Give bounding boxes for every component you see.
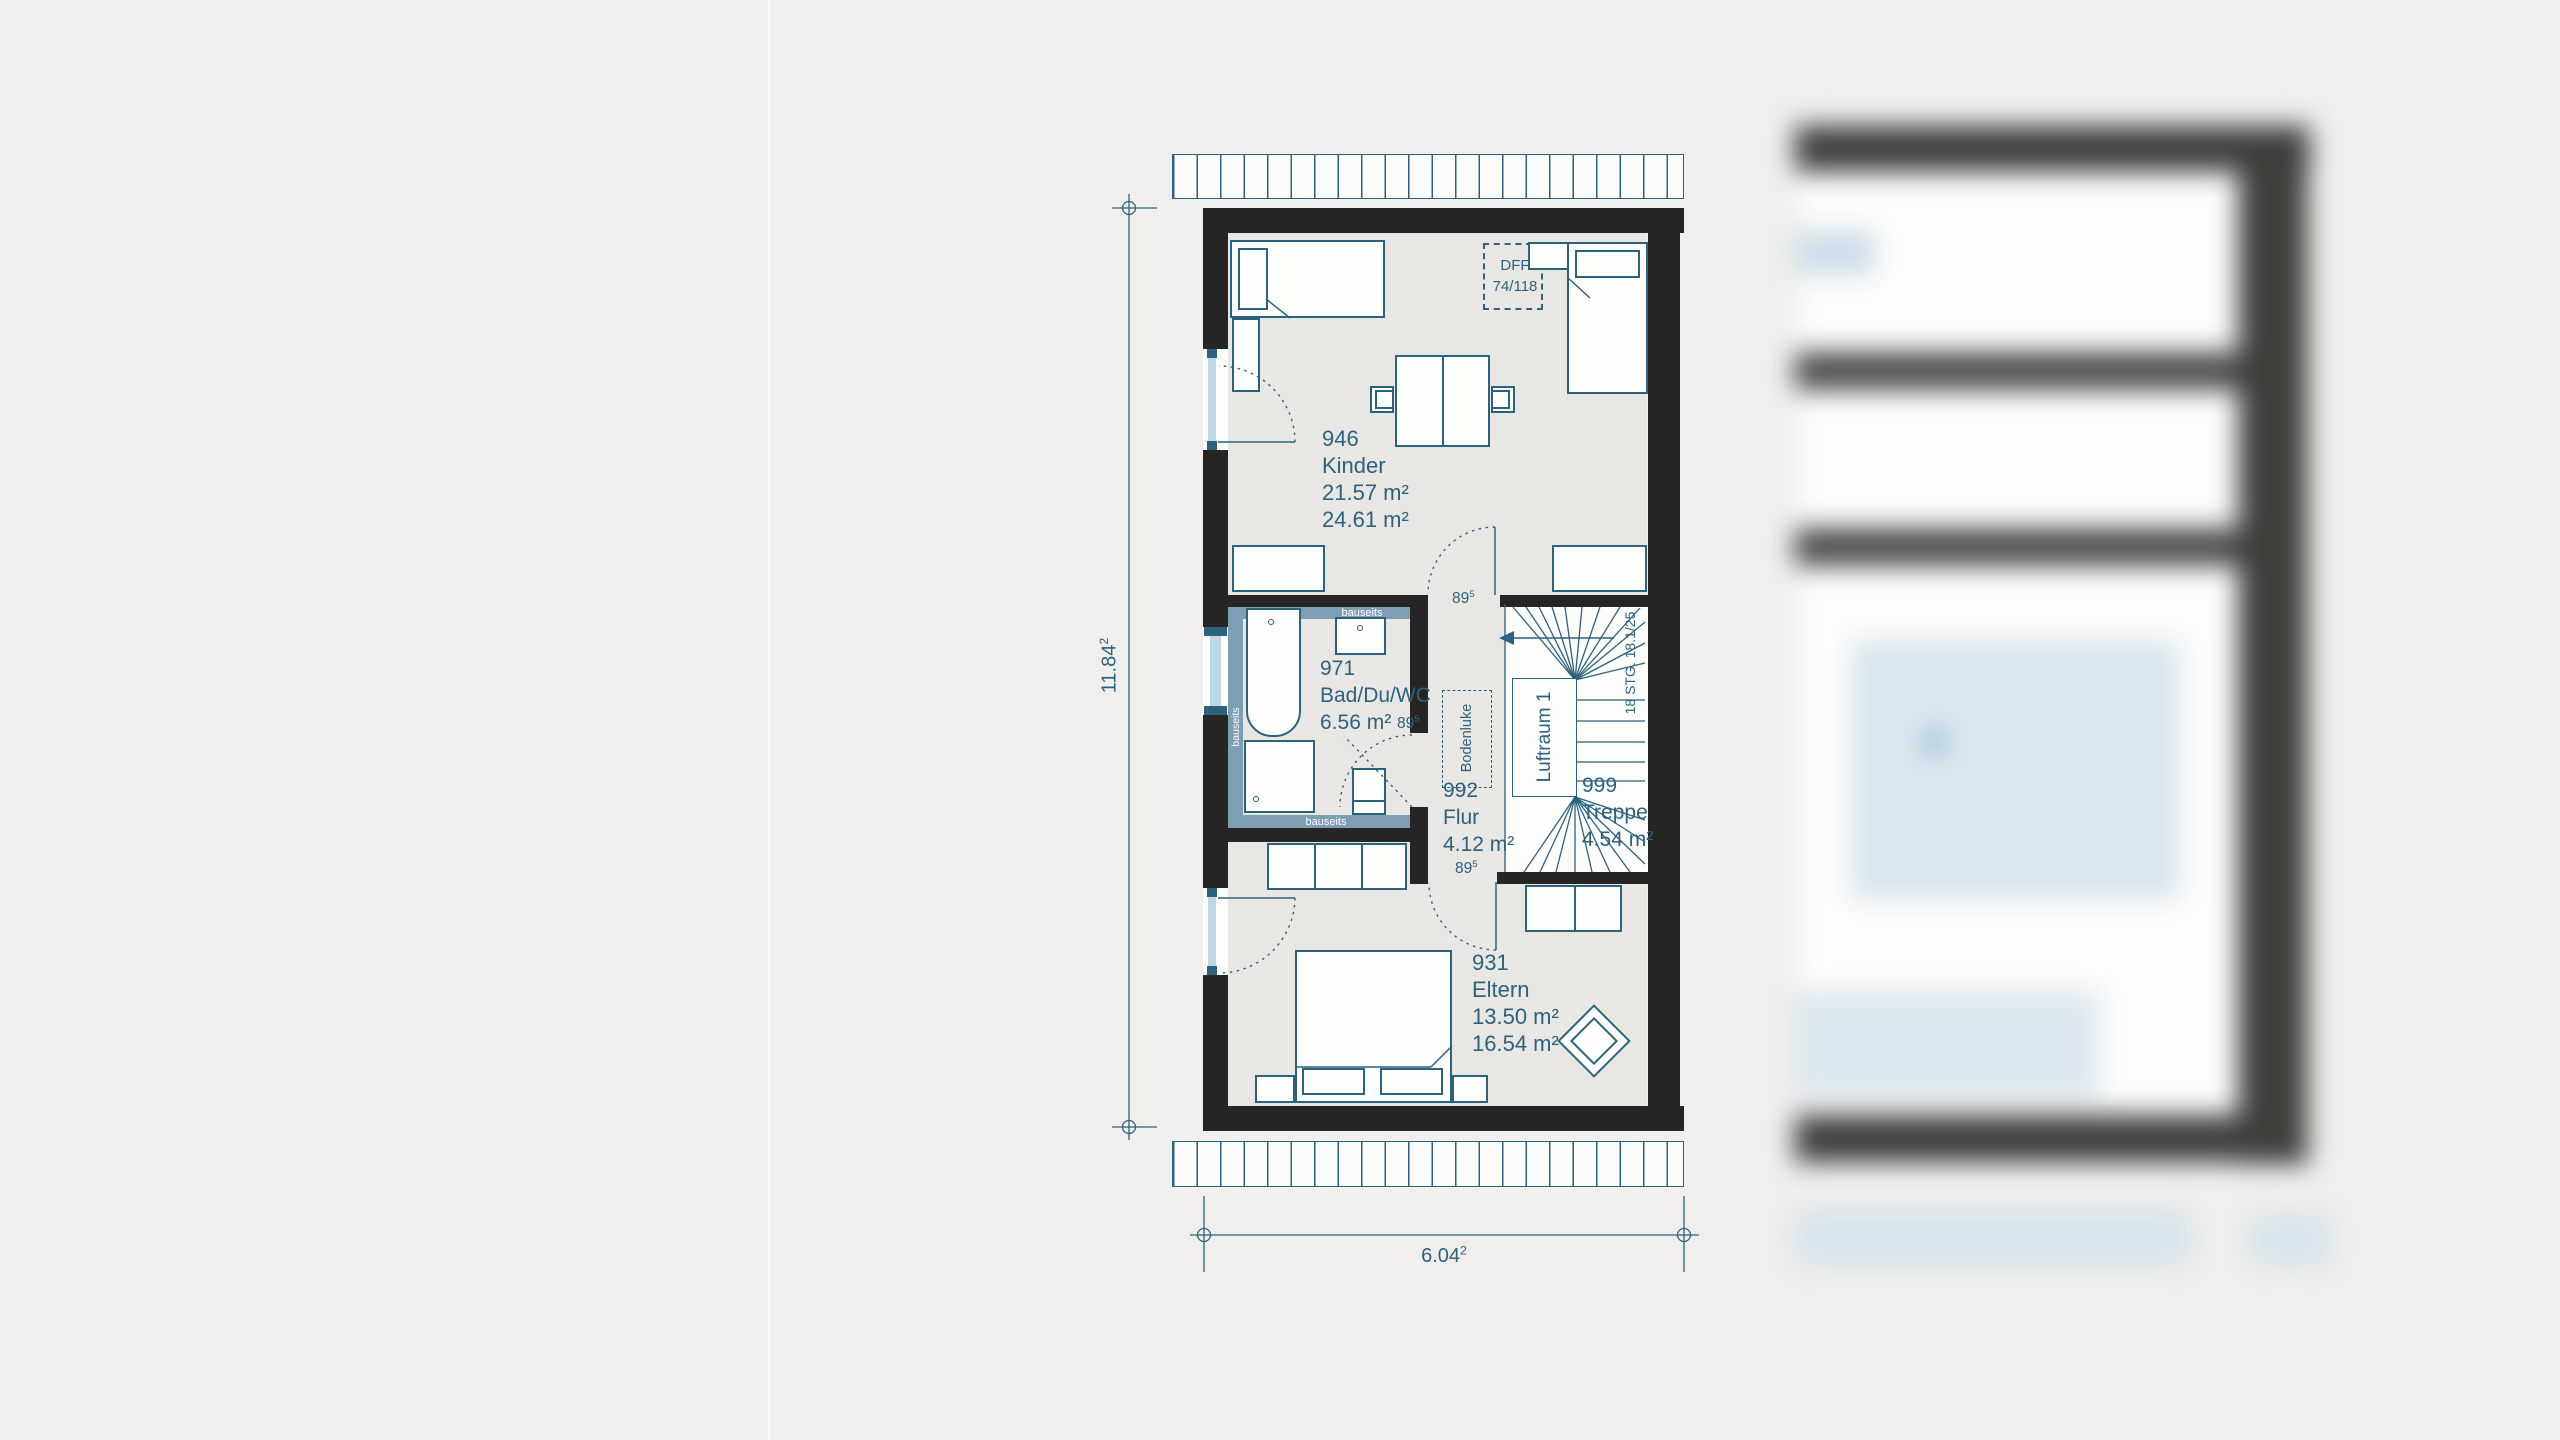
room-label-treppe: 999 Treppe 4.54 m²: [1582, 772, 1653, 853]
wall-exterior-left-segment: [1203, 715, 1228, 888]
kinder-desk-chair-right-seat: [1491, 390, 1510, 409]
blurred-floorplan-photo: [1760, 60, 2440, 1390]
blur-detail-dot: [1925, 732, 1945, 752]
bauseits-label: bauseits: [1286, 816, 1366, 828]
kinder-dresser-right: [1552, 545, 1647, 592]
room-number: 999: [1582, 772, 1653, 799]
bathtub: [1246, 608, 1301, 737]
room-number: 971: [1320, 655, 1431, 682]
wardrobe-divider: [1574, 887, 1576, 930]
blur-furniture-blob: [1795, 230, 1875, 275]
wall-bath-eltern: [1228, 828, 1417, 842]
window-frame-cap: [1207, 888, 1217, 897]
room-area: 4.54 m²: [1582, 826, 1653, 853]
stair-count-note: 18 STG. 18.1/25: [1622, 598, 1638, 728]
bauseits-label: bauseits: [1230, 697, 1242, 757]
room-name: Kinder: [1322, 452, 1409, 479]
roof-hatch-strip-bottom: [1172, 1141, 1684, 1187]
shower: [1244, 740, 1315, 813]
door-width-sup: 5: [1472, 859, 1477, 870]
kinder-dresser-left: [1232, 545, 1325, 592]
dim-sup: 2: [1097, 638, 1111, 645]
door-width-value: 89: [1452, 590, 1469, 607]
window-frame-cap: [1207, 441, 1217, 450]
bodenluke-label: Bodenluke: [1459, 688, 1475, 788]
bathtub-faucet-dot: [1268, 619, 1274, 625]
dimension-label-horizontal: 6.042: [1394, 1245, 1494, 1268]
bauseits-label: bauseits: [1322, 607, 1402, 619]
bath-window-pane: [1210, 636, 1221, 706]
room-label-eltern: 931 Eltern 13.50 m² 16.54 m²: [1472, 949, 1559, 1057]
blur-wall-top: [1795, 125, 2310, 172]
roof-hatch-strip-top: [1172, 154, 1684, 199]
window-frame-cap: [1207, 966, 1217, 975]
roof-window-dff-label: DFF 74/118: [1487, 255, 1543, 297]
background-seam-divider: [768, 0, 770, 1440]
eltern-wardrobe: [1525, 885, 1622, 932]
blur-wall-mid1: [1795, 352, 2240, 390]
shower-drain-dot: [1253, 796, 1259, 802]
air-space-label: Luftraum 1: [1534, 677, 1556, 797]
room-number: 931: [1472, 949, 1559, 976]
kinder-bed-2-pillow: [1575, 250, 1640, 278]
door-width-label: 895: [1455, 860, 1478, 878]
eltern-bed-cushion-left: [1302, 1068, 1365, 1095]
blur-furniture-blob: [1850, 640, 2180, 900]
blur-dimension-strip: [1795, 1210, 2190, 1265]
kinder-bedside-cabinet: [1232, 318, 1260, 392]
eltern-nightstand-right: [1452, 1075, 1488, 1103]
wall-exterior-left-segment: [1203, 208, 1228, 349]
eltern-nightstand-left: [1255, 1075, 1295, 1103]
dim-value: 6.04: [1421, 1245, 1460, 1267]
wall-exterior-bottom: [1203, 1106, 1684, 1131]
cabinet-divider: [1314, 845, 1316, 888]
room-label-flur: 992 Flur 4.12 m²: [1443, 777, 1514, 858]
wall-exterior-left-segment: [1203, 450, 1228, 627]
room-number: 946: [1322, 425, 1409, 452]
window-frame-cap: [1207, 349, 1217, 358]
door-width-value: 89: [1455, 860, 1472, 877]
door-width-sup: 5: [1469, 589, 1474, 600]
door-width-label: 895: [1397, 715, 1420, 733]
blur-wall-mid2: [1795, 528, 2240, 566]
wall-kinder-bath: [1228, 595, 1428, 607]
dim-value: 11.84: [1099, 645, 1121, 694]
door-width-sup: 5: [1414, 714, 1419, 725]
room-name: Flur: [1443, 804, 1514, 831]
kinder-window-pane: [1208, 358, 1216, 441]
eltern-window-pane: [1208, 897, 1216, 966]
bath-sink: [1335, 617, 1386, 655]
room-area: 24.61 m²: [1322, 506, 1409, 533]
cabinet-divider: [1361, 845, 1363, 888]
blur-furniture-blob: [1795, 990, 2100, 1100]
room-area: 13.50 m²: [1472, 1003, 1559, 1030]
door-width-label: 895: [1452, 590, 1475, 608]
wall-bath-corridor-lower: [1410, 807, 1428, 884]
kinder-desk: [1395, 355, 1490, 447]
wall-exterior-left-segment: [1203, 975, 1228, 1106]
wall-exterior-right: [1648, 208, 1680, 1131]
sink-faucet-dot: [1357, 625, 1363, 631]
eltern-bed-cushion-right: [1380, 1068, 1443, 1095]
dimension-label-vertical: 11.842: [1099, 606, 1122, 726]
dff-line1: DFF: [1487, 255, 1543, 276]
wall-stairs-eltern: [1497, 872, 1648, 884]
room-area: 21.57 m²: [1322, 479, 1409, 506]
room-name: Treppe: [1582, 799, 1653, 826]
dim-sup: 2: [1460, 1243, 1467, 1257]
toilet: [1352, 768, 1386, 815]
room-name: Eltern: [1472, 976, 1559, 1003]
desk-divider: [1442, 357, 1444, 445]
room-area: 4.12 m²: [1443, 831, 1514, 858]
dff-line2: 74/118: [1487, 276, 1543, 297]
room-area: 16.54 m²: [1472, 1030, 1559, 1057]
kinder-desk-chair-left-seat: [1375, 390, 1394, 409]
blur-dimension-strip: [2250, 1215, 2330, 1265]
toilet-tank-line: [1354, 800, 1384, 802]
room-name: Bad/Du/WC: [1320, 682, 1431, 709]
background-left-panel: [0, 0, 768, 1440]
blur-wall-bottom: [1795, 1115, 2240, 1163]
door-width-value: 89: [1397, 715, 1414, 732]
window-frame-cap: [1204, 627, 1227, 636]
wall-exterior-top: [1203, 208, 1684, 233]
eltern-cabinet-row: [1267, 843, 1407, 890]
kinder-bed-1-pillow: [1238, 248, 1268, 310]
window-frame-cap: [1204, 706, 1227, 715]
blur-wall-right: [2238, 125, 2308, 1165]
room-label-kinder: 946 Kinder 21.57 m² 24.61 m²: [1322, 425, 1409, 533]
room-number: 992: [1443, 777, 1514, 804]
floorplan-page: bauseits bauseits bauseits DFF 74/118 Bo…: [0, 0, 2560, 1440]
